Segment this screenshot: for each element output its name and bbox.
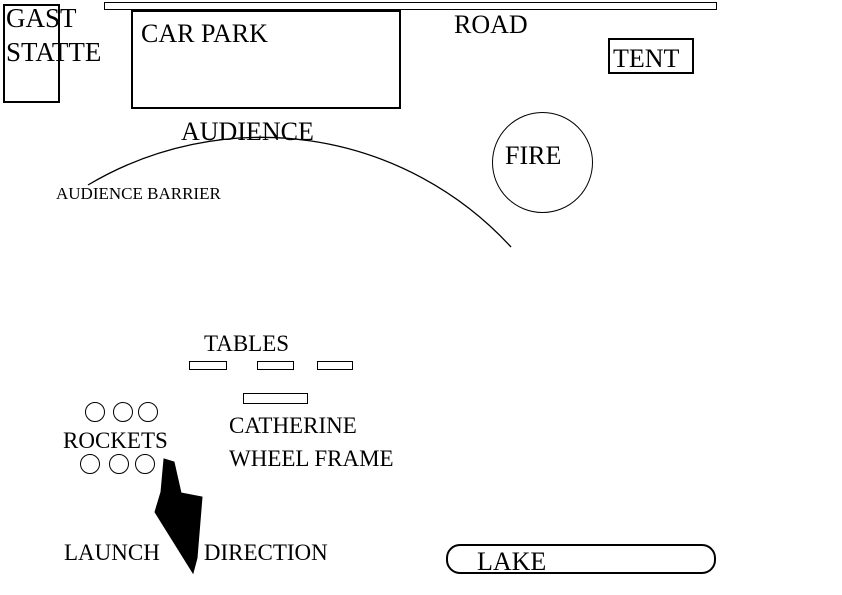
catherine-wheel-label: CATHERINE WHEEL FRAME [229,409,394,475]
rocket-shape [109,454,129,474]
catherine-wheel-label-line1: CATHERINE [229,409,394,442]
rockets-label: ROCKETS [63,428,168,454]
rocket-shape [85,402,105,422]
rocket-shape [80,454,100,474]
fire-label: FIRE [505,141,561,171]
launch-direction-word1: LAUNCH [64,540,160,566]
car-park-label: CAR PARK [141,19,268,49]
audience-barrier-label: AUDIENCE BARRIER [56,184,221,204]
rocket-shape [138,402,158,422]
launch-direction-label: LAUNCH DIRECTION [64,540,328,566]
rocket-shape [135,454,155,474]
guesthouse-label-line2: STATTE [6,35,101,69]
guesthouse-label-line1: GAST [6,1,101,35]
lake-label: LAKE [477,547,546,577]
tent-label: TENT [613,44,679,74]
audience-label: AUDIENCE [181,117,314,147]
tables-label: TABLES [204,331,289,357]
road-edge-bar [104,2,717,10]
site-plan-canvas: GAST STATTE CAR PARK ROAD TENT AUDIENCE … [0,0,842,595]
catherine-wheel-frame-shape [243,393,308,404]
catherine-wheel-label-line2: WHEEL FRAME [229,442,394,475]
rocket-shape [113,402,133,422]
table-shape [317,361,353,370]
guesthouse-label: GAST STATTE [6,1,101,69]
road-label: ROAD [454,10,528,40]
overlay-drawing-layer [0,0,842,595]
table-shape [189,361,227,370]
table-shape [257,361,294,370]
launch-direction-word2: DIRECTION [204,540,328,566]
